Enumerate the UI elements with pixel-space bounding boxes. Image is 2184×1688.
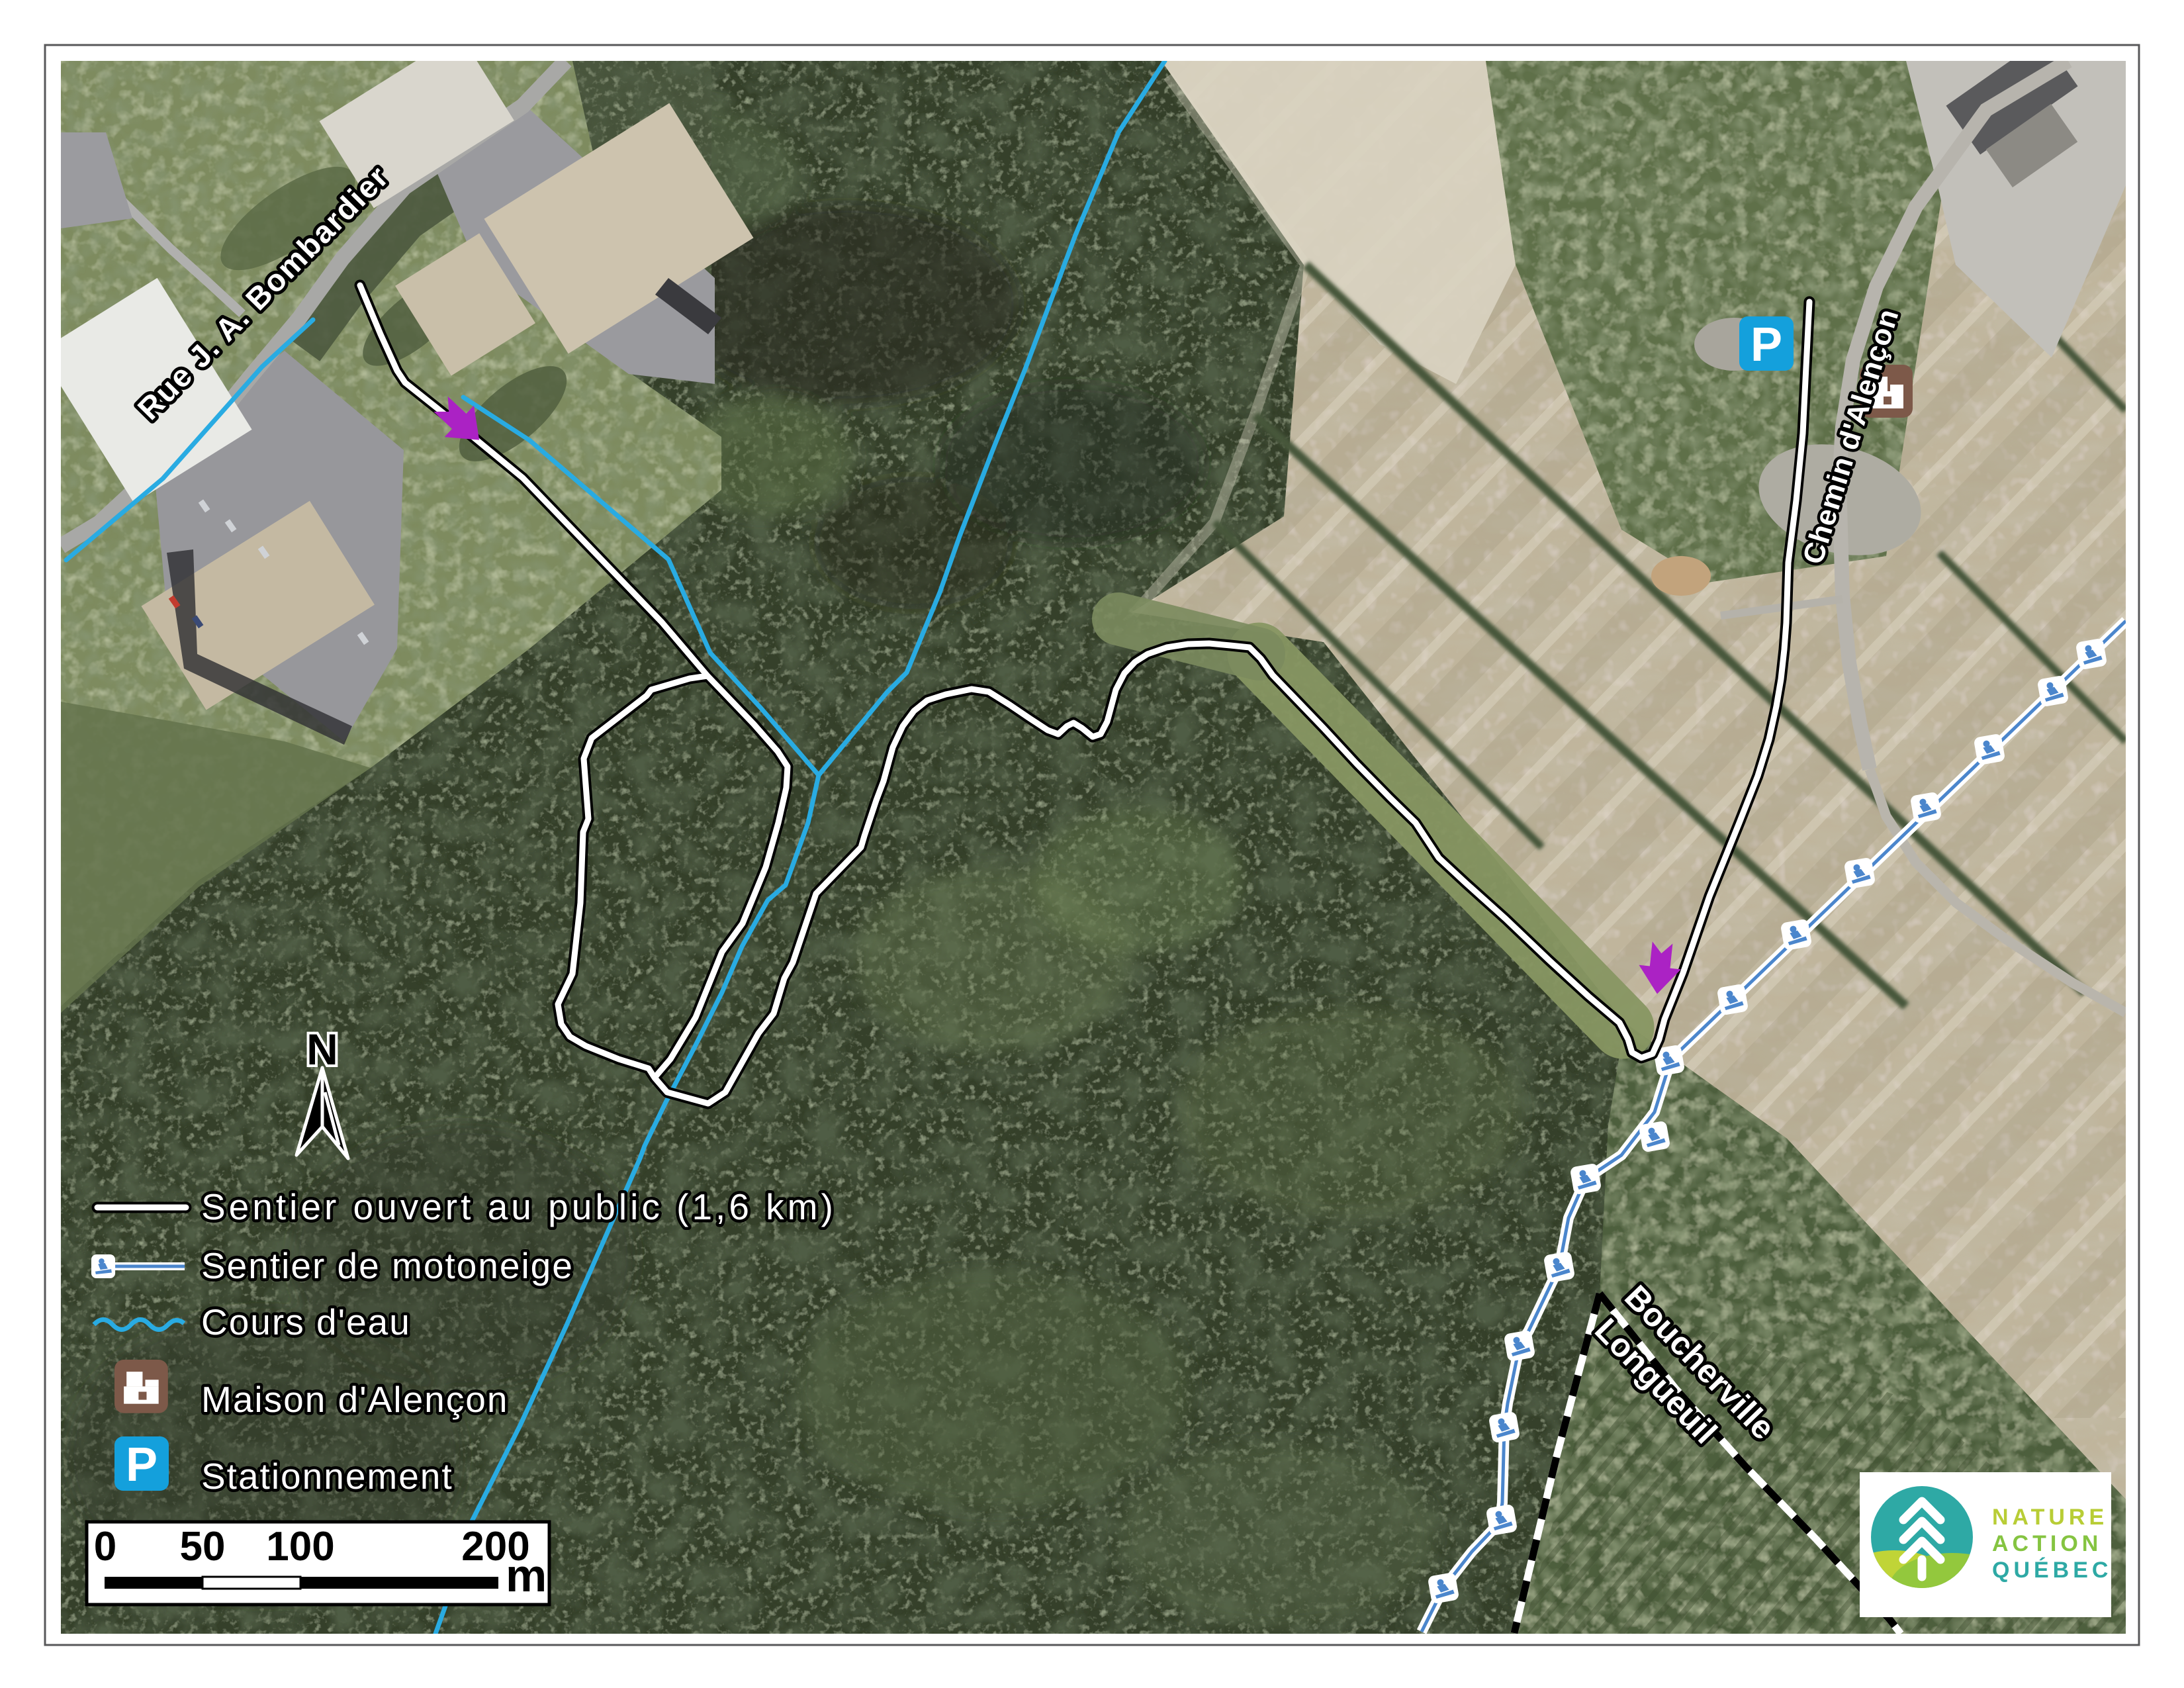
svg-text:Maison d'Alençon: Maison d'Alençon — [201, 1379, 508, 1420]
svg-text:Sentier ouvert au public (1,6: Sentier ouvert au public (1,6 km) — [201, 1186, 837, 1227]
svg-text:QUÉBEC: QUÉBEC — [1992, 1558, 2112, 1583]
svg-text:0: 0 — [94, 1524, 116, 1570]
svg-text:50: 50 — [180, 1524, 226, 1570]
svg-text:Stationnement: Stationnement — [201, 1456, 453, 1497]
svg-text:m: m — [506, 1550, 547, 1601]
svg-text:Cours d'eau: Cours d'eau — [201, 1301, 411, 1342]
svg-text:ACTION: ACTION — [1992, 1531, 2102, 1556]
svg-text:100: 100 — [266, 1524, 334, 1570]
svg-text:Sentier de motoneige: Sentier de motoneige — [201, 1245, 574, 1286]
svg-text:NATURE: NATURE — [1992, 1505, 2108, 1530]
